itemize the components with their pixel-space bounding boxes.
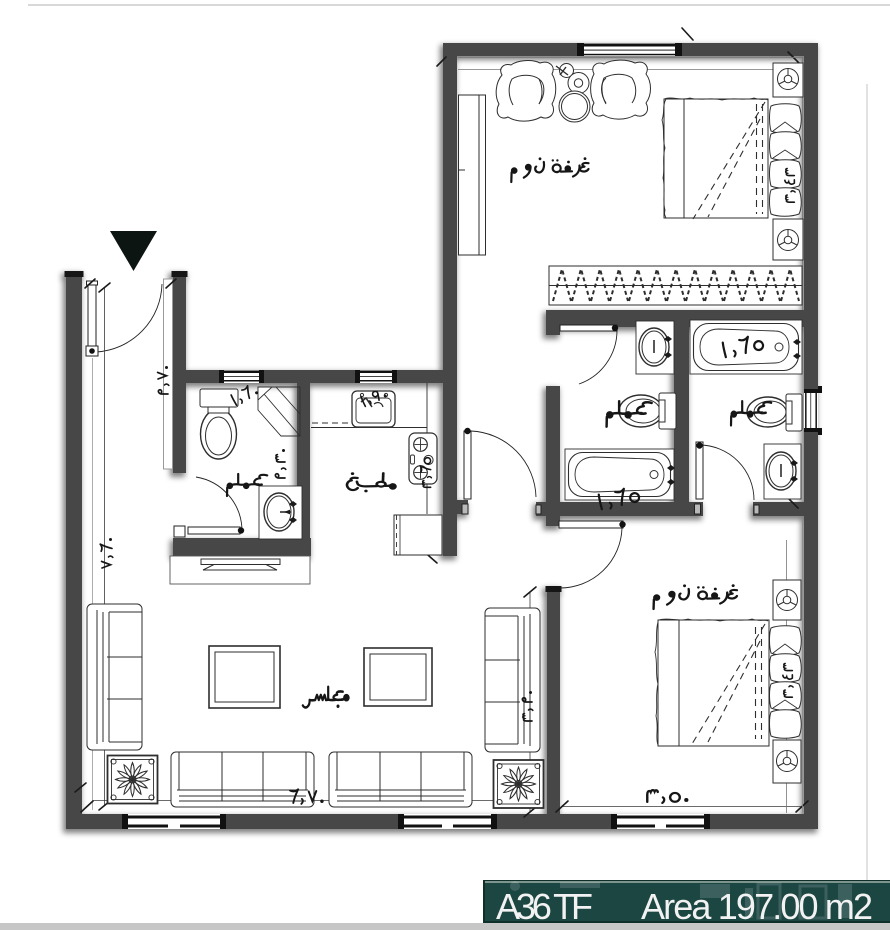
svg-text:Area 197.00 m2: Area 197.00 m2: [641, 886, 873, 927]
svg-text:A36 TF: A36 TF: [496, 886, 593, 927]
